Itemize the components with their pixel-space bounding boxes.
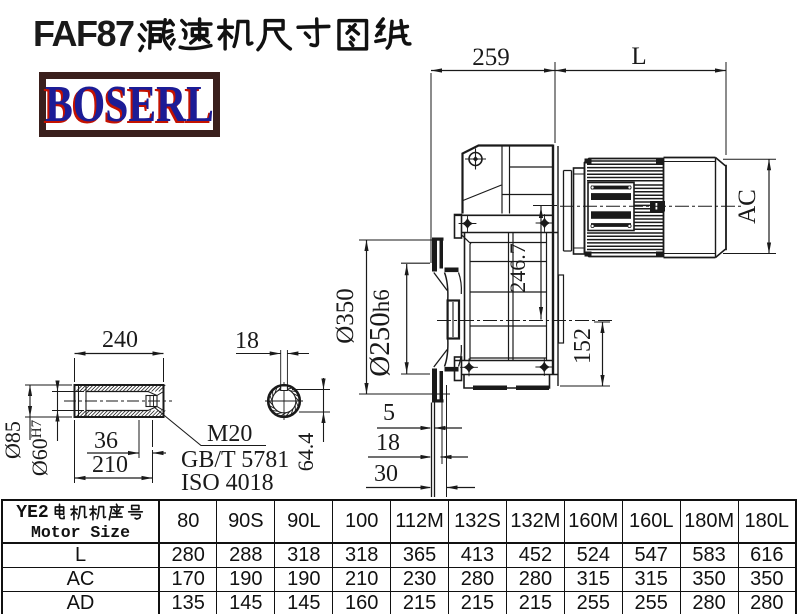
svg-text:259: 259	[472, 44, 510, 71]
svg-text:64.4: 64.4	[293, 433, 318, 472]
svg-text:18: 18	[235, 328, 259, 354]
svg-text:Ø60H7: Ø60H7	[27, 419, 52, 476]
svg-text:Ø85: Ø85	[0, 421, 25, 459]
svg-text:Ø350: Ø350	[332, 288, 359, 344]
svg-text:FAF87: FAF87	[33, 13, 134, 54]
svg-text:Ø250h6: Ø250h6	[364, 289, 396, 376]
svg-text:36: 36	[94, 428, 118, 454]
svg-text:18: 18	[376, 430, 400, 456]
svg-text:210: 210	[92, 452, 128, 478]
svg-text:M20: M20	[207, 421, 252, 447]
svg-text:152: 152	[570, 328, 596, 364]
svg-text:ISO 4018: ISO 4018	[181, 470, 274, 496]
svg-text:L: L	[631, 43, 646, 70]
svg-text:30: 30	[374, 461, 398, 487]
svg-text:5: 5	[383, 400, 395, 426]
svg-text:240: 240	[102, 327, 138, 353]
